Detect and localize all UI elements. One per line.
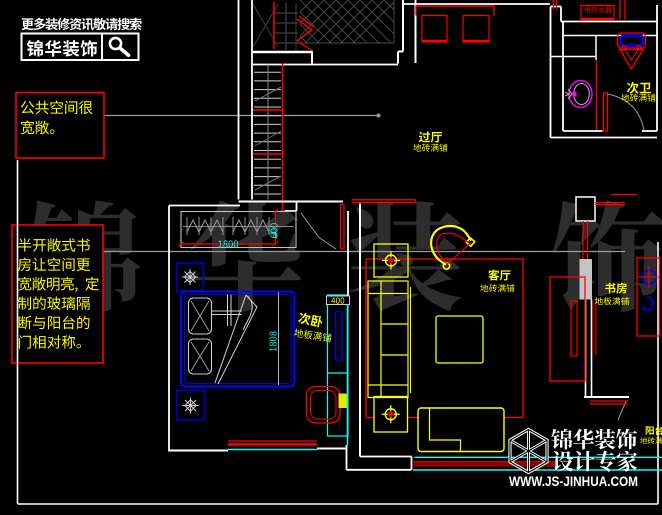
svg-text:WWW.JS-JINHUA.COM: WWW.JS-JINHUA.COM: [509, 474, 638, 489]
